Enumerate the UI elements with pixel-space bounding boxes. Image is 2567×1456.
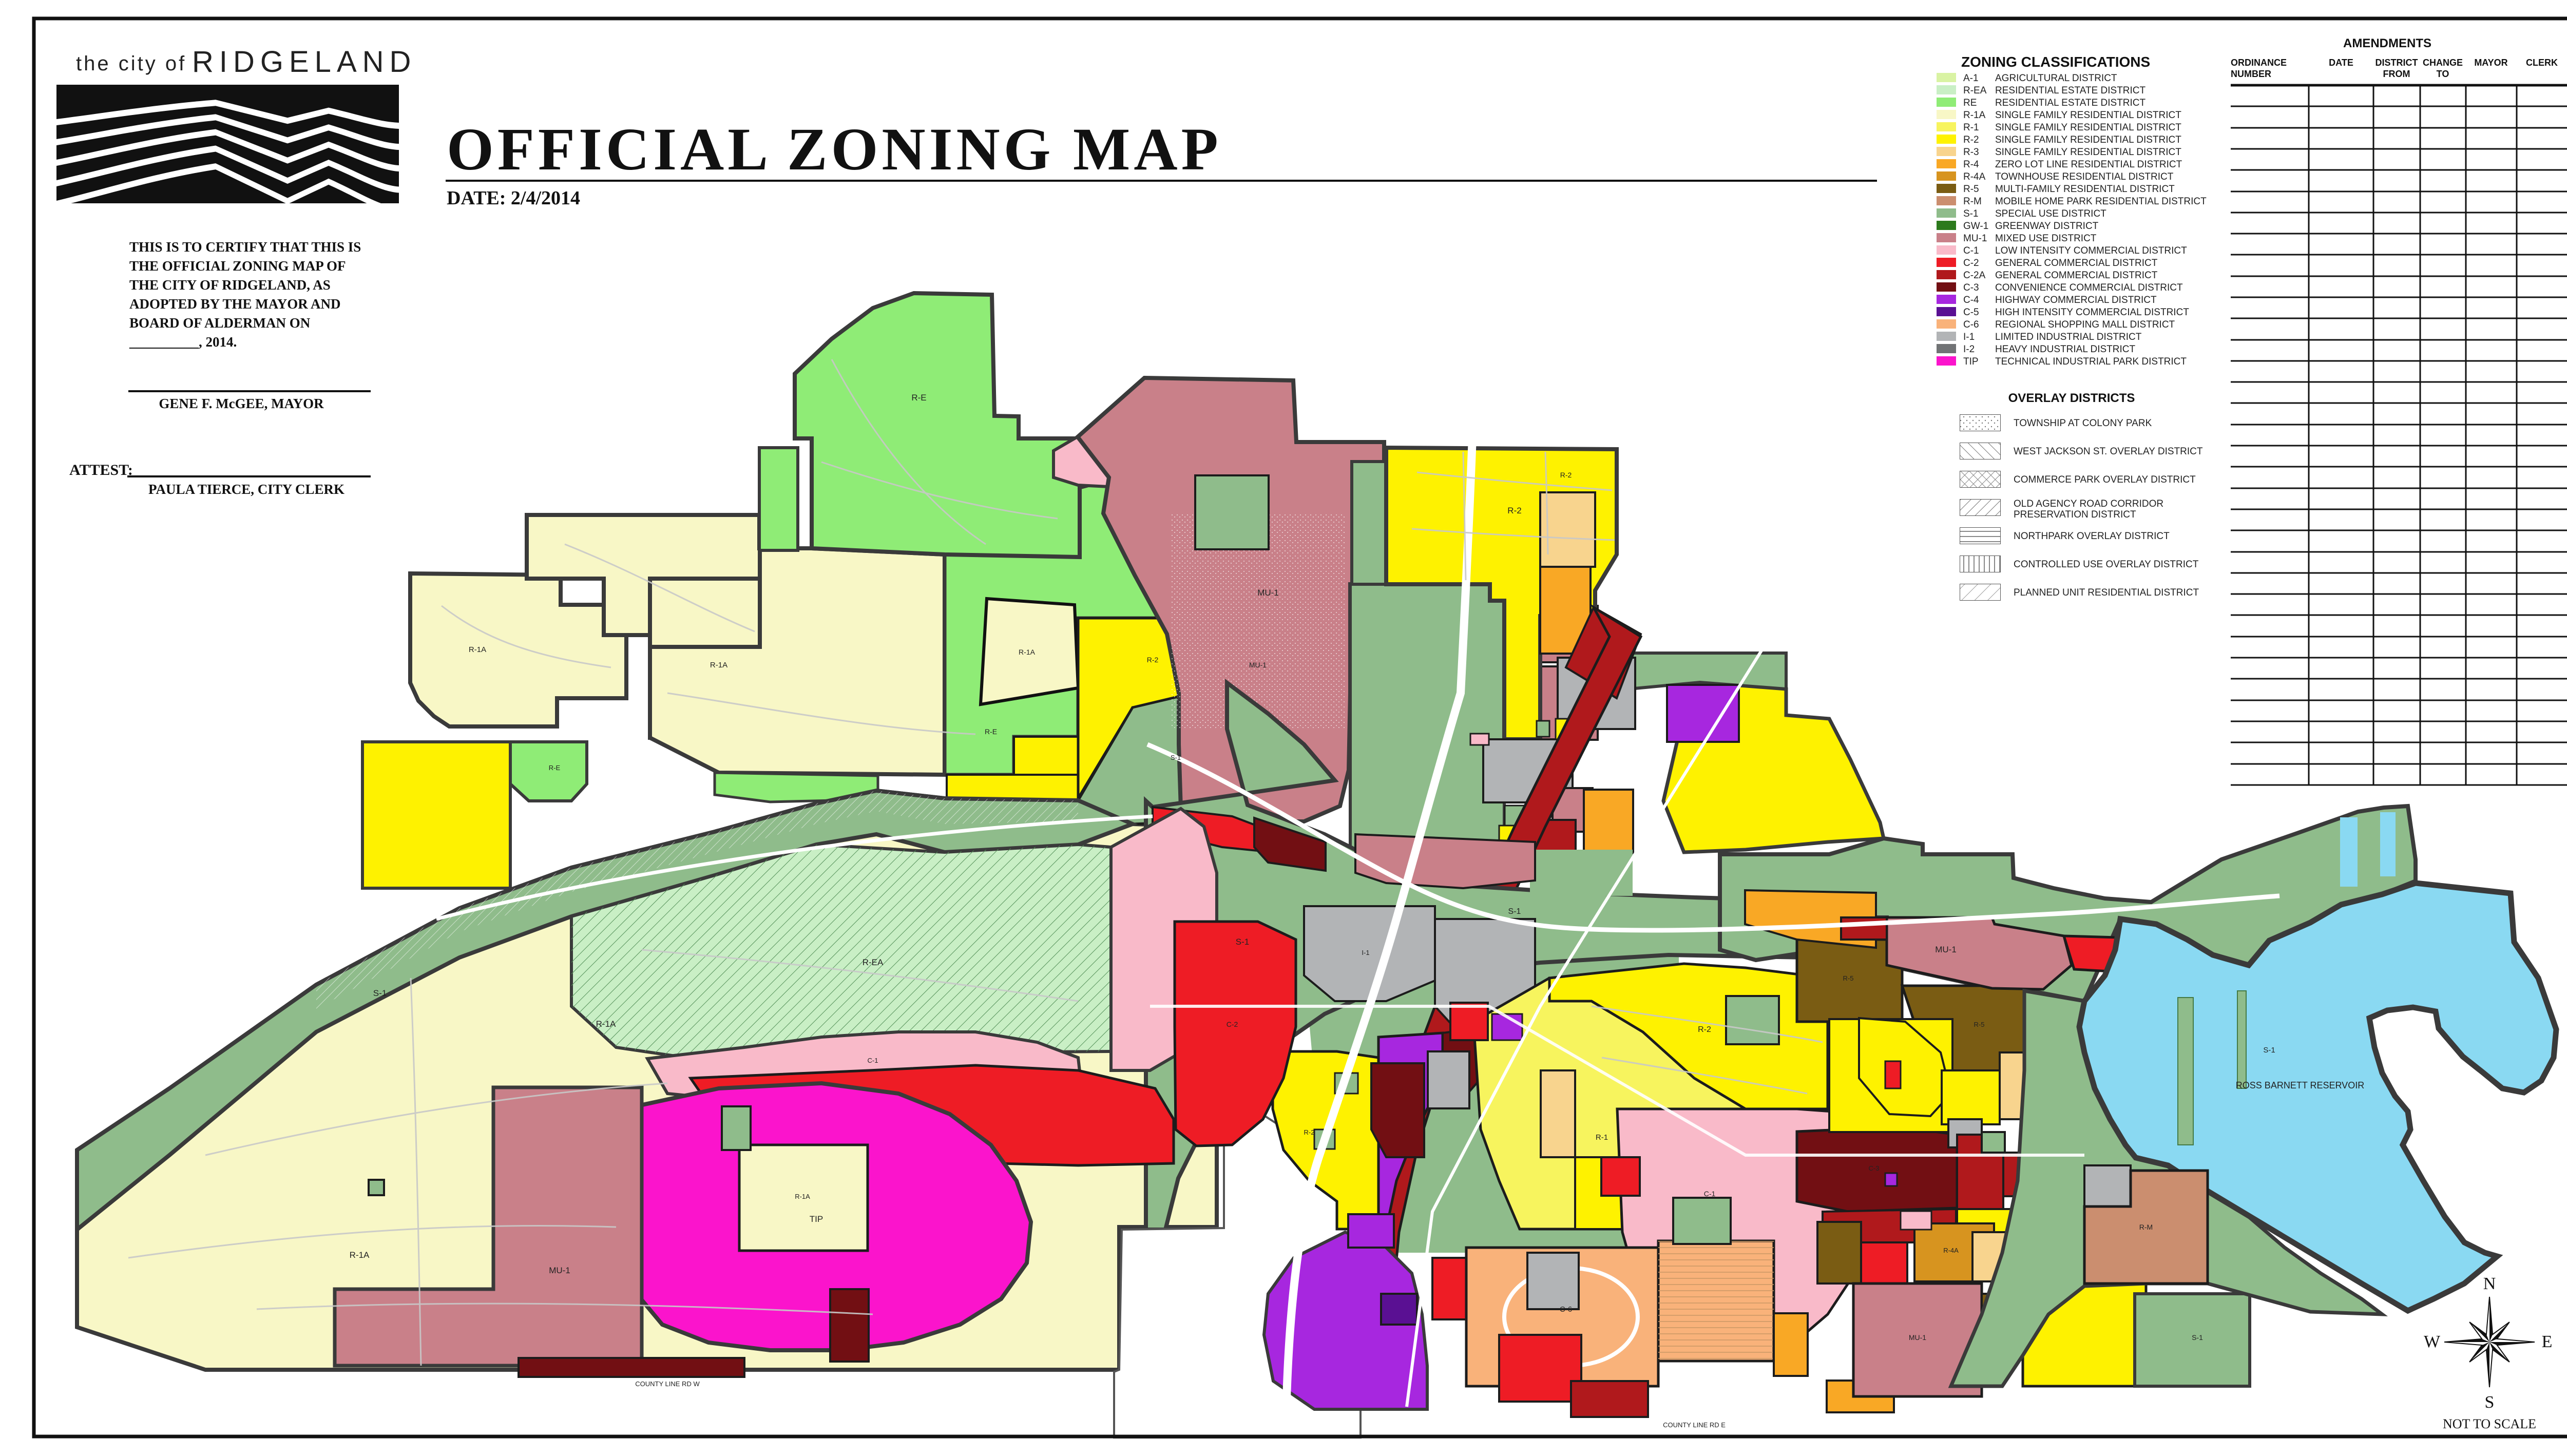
svg-text:CLERK: CLERK	[2526, 58, 2558, 68]
svg-text:TOWNSHIP AT COLONY PARK: TOWNSHIP AT COLONY PARK	[2014, 418, 2152, 429]
svg-text:C-6: C-6	[1963, 319, 1979, 330]
svg-text:R-3: R-3	[1963, 147, 1979, 158]
svg-text:R-1A: R-1A	[469, 645, 486, 654]
svg-text:C-5: C-5	[1963, 307, 1979, 318]
svg-text:RESIDENTIAL ESTATE DISTRICT: RESIDENTIAL ESTATE DISTRICT	[1995, 85, 2146, 96]
svg-text:the city of: the city of	[76, 52, 186, 75]
svg-text:R-M: R-M	[1963, 196, 1982, 207]
svg-text:MOBILE HOME PARK RESIDENTIAL D: MOBILE HOME PARK RESIDENTIAL DISTRICT	[1995, 196, 2207, 207]
svg-text:W: W	[2424, 1332, 2441, 1351]
svg-text:R-2: R-2	[1698, 1025, 1711, 1034]
svg-text:R-1A: R-1A	[350, 1250, 370, 1260]
svg-text:OVERLAY DISTRICTS: OVERLAY DISTRICTS	[2008, 391, 2135, 405]
svg-text:S-1: S-1	[1171, 754, 1181, 761]
svg-text:I-2: I-2	[1963, 344, 1975, 355]
svg-text:S-1: S-1	[373, 988, 387, 998]
svg-text:NORTHPARK OVERLAY DISTRICT: NORTHPARK OVERLAY DISTRICT	[2014, 531, 2170, 542]
svg-text:I-1: I-1	[1362, 949, 1369, 956]
svg-text:R-1A: R-1A	[795, 1193, 810, 1200]
svg-text:COMMERCE PARK OVERLAY DISTRICT: COMMERCE PARK OVERLAY DISTRICT	[2014, 474, 2196, 485]
svg-text:RE: RE	[1963, 98, 1977, 108]
svg-text:COUNTY LINE RD W: COUNTY LINE RD W	[635, 1380, 700, 1388]
svg-text:ADOPTED BY THE MAYOR AND: ADOPTED BY THE MAYOR AND	[129, 296, 341, 312]
svg-text:ZONING CLASSIFICATIONS: ZONING CLASSIFICATIONS	[1961, 54, 2150, 70]
svg-text:R-1: R-1	[1963, 122, 1979, 133]
svg-text:C-2: C-2	[1227, 1020, 1238, 1028]
svg-text:TIP: TIP	[810, 1214, 823, 1224]
svg-text:I-1: I-1	[1963, 332, 1975, 342]
svg-text:C-3: C-3	[1869, 1164, 1880, 1172]
svg-text:R-2: R-2	[1147, 656, 1159, 664]
svg-text:MU-1: MU-1	[1963, 233, 1987, 244]
svg-text:HIGH INTENSITY COMMERCIAL DIST: HIGH INTENSITY COMMERCIAL DISTRICT	[1995, 307, 2189, 318]
svg-text:AMENDMENTS: AMENDMENTS	[2343, 36, 2431, 50]
svg-text:R-5: R-5	[1974, 1021, 1985, 1028]
svg-text:R-1A: R-1A	[710, 661, 727, 669]
svg-text:S-1: S-1	[2192, 1333, 2203, 1342]
svg-text:R-2: R-2	[1560, 471, 1572, 479]
svg-text:C-1: C-1	[868, 1057, 878, 1064]
svg-text:RESIDENTIAL ESTATE DISTRICT: RESIDENTIAL ESTATE DISTRICT	[1995, 98, 2146, 108]
svg-text:CONVENIENCE COMMERCIAL DISTRIC: CONVENIENCE COMMERCIAL DISTRICT	[1995, 282, 2183, 293]
svg-text:ZERO LOT LINE RESIDENTIAL DIST: ZERO LOT LINE RESIDENTIAL DISTRICT	[1995, 159, 2182, 170]
svg-text:THIS IS TO CERTIFY THAT THIS I: THIS IS TO CERTIFY THAT THIS IS	[129, 239, 361, 255]
svg-text:N: N	[2483, 1274, 2496, 1293]
svg-text:HEAVY INDUSTRIAL DISTRICT: HEAVY INDUSTRIAL DISTRICT	[1995, 344, 2135, 355]
svg-text:__________, 2014.: __________, 2014.	[129, 334, 237, 350]
svg-text:ROSS BARNETT RESERVOIR: ROSS BARNETT RESERVOIR	[2236, 1080, 2364, 1090]
svg-text:SPECIAL USE DISTRICT: SPECIAL USE DISTRICT	[1995, 208, 2106, 219]
svg-text:S-1: S-1	[1508, 907, 1521, 916]
svg-text:MAYOR: MAYOR	[2474, 58, 2507, 68]
svg-text:ORDINANCE: ORDINANCE	[2231, 58, 2287, 68]
svg-text:C-1: C-1	[1704, 1190, 1716, 1198]
svg-text:PLANNED UNIT RESIDENTIAL DISTR: PLANNED UNIT RESIDENTIAL DISTRICT	[2014, 587, 2199, 598]
svg-text:GENERAL COMMERCIAL DISTRICT: GENERAL COMMERCIAL DISTRICT	[1995, 258, 2158, 269]
svg-text:NUMBER: NUMBER	[2231, 69, 2271, 79]
svg-text:BOARD OF ALDERMAN: BOARD OF ALDERMAN ON	[129, 315, 311, 331]
svg-text:LIMITED INDUSTRIAL DISTRICT: LIMITED INDUSTRIAL DISTRICT	[1995, 332, 2142, 342]
svg-text:S-1: S-1	[1963, 208, 1979, 219]
svg-text:THE CITY OF RIDGELAND,: THE CITY OF RIDGELAND, AS	[129, 277, 331, 293]
svg-text:RIDGELAND: RIDGELAND	[192, 45, 416, 79]
svg-text:R-5: R-5	[1843, 974, 1854, 982]
svg-text:GENERAL COMMERCIAL DISTRICT: GENERAL COMMERCIAL DISTRICT	[1995, 270, 2158, 281]
svg-text:WEST JACKSON ST. OVERLAY DISTR: WEST JACKSON ST. OVERLAY DISTRICT	[2014, 446, 2203, 457]
svg-text:S: S	[2485, 1393, 2495, 1412]
svg-text:R-M: R-M	[2139, 1223, 2153, 1231]
svg-text:GW-1: GW-1	[1963, 221, 1988, 232]
svg-text:R-1: R-1	[1596, 1133, 1608, 1142]
svg-text:NOT TO SCALE: NOT TO SCALE	[2443, 1416, 2536, 1431]
svg-text:MU-1: MU-1	[1249, 661, 1267, 669]
svg-text:S-1: S-1	[1236, 937, 1249, 947]
svg-text:PAULA TIERCE, CITY CLERK: PAULA TIERCE, CITY CLERK	[148, 482, 344, 497]
svg-text:R-2: R-2	[1963, 135, 1979, 145]
svg-text:S-1: S-1	[2263, 1046, 2275, 1055]
svg-text:DATE: DATE	[2329, 58, 2353, 68]
svg-text:R-4: R-4	[1963, 159, 1979, 170]
svg-text:CONTROLLED USE OVERLAY DISTRIC: CONTROLLED USE OVERLAY DISTRICT	[2014, 559, 2199, 570]
svg-text:DISTRICT: DISTRICT	[2376, 58, 2418, 68]
svg-text:MU-1: MU-1	[1909, 1333, 1926, 1342]
svg-text:R-EA: R-EA	[1963, 85, 1987, 96]
svg-text:TECHNICAL INDUSTRIAL PARK DIST: TECHNICAL INDUSTRIAL PARK DISTRICT	[1995, 356, 2187, 367]
svg-text:TIP: TIP	[1963, 356, 1979, 367]
svg-text:R-2: R-2	[1507, 506, 1521, 515]
svg-text:REGIONAL SHOPPING MALL DISTRIC: REGIONAL SHOPPING MALL DISTRICT	[1995, 319, 2175, 330]
svg-text:TO: TO	[2437, 69, 2449, 79]
svg-text:R-4A: R-4A	[1963, 171, 1986, 182]
svg-text:OFFICIAL ZONING MAP: OFFICIAL ZONING MAP	[447, 116, 1222, 183]
svg-text:C-1: C-1	[1963, 245, 1979, 256]
svg-text:C-2A: C-2A	[1963, 270, 1986, 281]
svg-text:TOWNHOUSE RESIDENTIAL DISTRICT: TOWNHOUSE RESIDENTIAL DISTRICT	[1995, 171, 2174, 182]
svg-text:R-4A: R-4A	[1943, 1247, 1959, 1254]
svg-text:CHANGE: CHANGE	[2423, 58, 2463, 68]
svg-text:MIXED USE DISTRICT: MIXED USE DISTRICT	[1995, 233, 2097, 244]
svg-text:AGRICULTURAL DISTRICT: AGRICULTURAL DISTRICT	[1995, 73, 2117, 84]
svg-text:SINGLE FAMILY RESIDENTIAL DIST: SINGLE FAMILY RESIDENTIAL DISTRICT	[1995, 122, 2181, 133]
svg-text:C-2: C-2	[1963, 258, 1979, 269]
svg-text:R-1A: R-1A	[1019, 648, 1036, 656]
svg-text:MU-1: MU-1	[549, 1266, 570, 1275]
svg-text:MU-1: MU-1	[1257, 588, 1279, 598]
svg-text:PRESERVATION DISTRICT: PRESERVATION DISTRICT	[2014, 509, 2136, 520]
svg-text:GENE F. McGEE, MAYOR: GENE F. McGEE, MAYOR	[159, 396, 324, 411]
svg-text:OLD AGENCY ROAD CORRIDOR: OLD AGENCY ROAD CORRIDOR	[2014, 499, 2163, 509]
svg-text:ATTEST:: ATTEST:	[69, 462, 133, 478]
svg-text:R-1A: R-1A	[596, 1019, 616, 1029]
svg-text:R-E: R-E	[985, 727, 997, 736]
svg-text:E: E	[2542, 1332, 2553, 1351]
svg-text:C-4: C-4	[1963, 295, 1979, 305]
svg-text:R-EA: R-EA	[863, 957, 884, 967]
svg-text:C-3: C-3	[1963, 282, 1979, 293]
svg-text:SINGLE FAMILY RESIDENTIAL DIST: SINGLE FAMILY RESIDENTIAL DISTRICT	[1995, 135, 2181, 145]
svg-text:MU-1: MU-1	[1935, 945, 1957, 954]
svg-text:FROM: FROM	[2383, 69, 2410, 79]
svg-text:SINGLE FAMILY RESIDENTIAL DIST: SINGLE FAMILY RESIDENTIAL DISTRICT	[1995, 147, 2181, 158]
svg-text:R-5: R-5	[1963, 184, 1979, 195]
svg-text:GREENWAY DISTRICT: GREENWAY DISTRICT	[1995, 221, 2099, 232]
svg-text:R-2: R-2	[1304, 1128, 1315, 1136]
svg-text:SINGLE FAMILY RESIDENTIAL DIST: SINGLE FAMILY RESIDENTIAL DISTRICT	[1995, 110, 2181, 121]
svg-text:C-6: C-6	[1560, 1305, 1572, 1314]
svg-text:HIGHWAY COMMERCIAL DISTRICT: HIGHWAY COMMERCIAL DISTRICT	[1995, 295, 2157, 305]
svg-text:COUNTY LINE RD E: COUNTY LINE RD E	[1663, 1421, 1726, 1429]
svg-text:LOW INTENSITY COMMERCIAL DISTR: LOW INTENSITY COMMERCIAL DISTRICT	[1995, 245, 2187, 256]
svg-text:THE OFFICIAL ZONING MAP OF: THE OFFICIAL ZONING MAP OF	[129, 258, 346, 274]
svg-text:A-1: A-1	[1963, 73, 1979, 84]
svg-text:DATE: 2/4/2014: DATE: 2/4/2014	[447, 187, 580, 209]
svg-text:MULTI-FAMILY RESIDENTIAL DISTR: MULTI-FAMILY RESIDENTIAL DISTRICT	[1995, 184, 2175, 195]
svg-text:R-1A: R-1A	[1963, 110, 1986, 121]
svg-text:R-E: R-E	[549, 764, 561, 772]
svg-text:R-E: R-E	[911, 393, 926, 403]
